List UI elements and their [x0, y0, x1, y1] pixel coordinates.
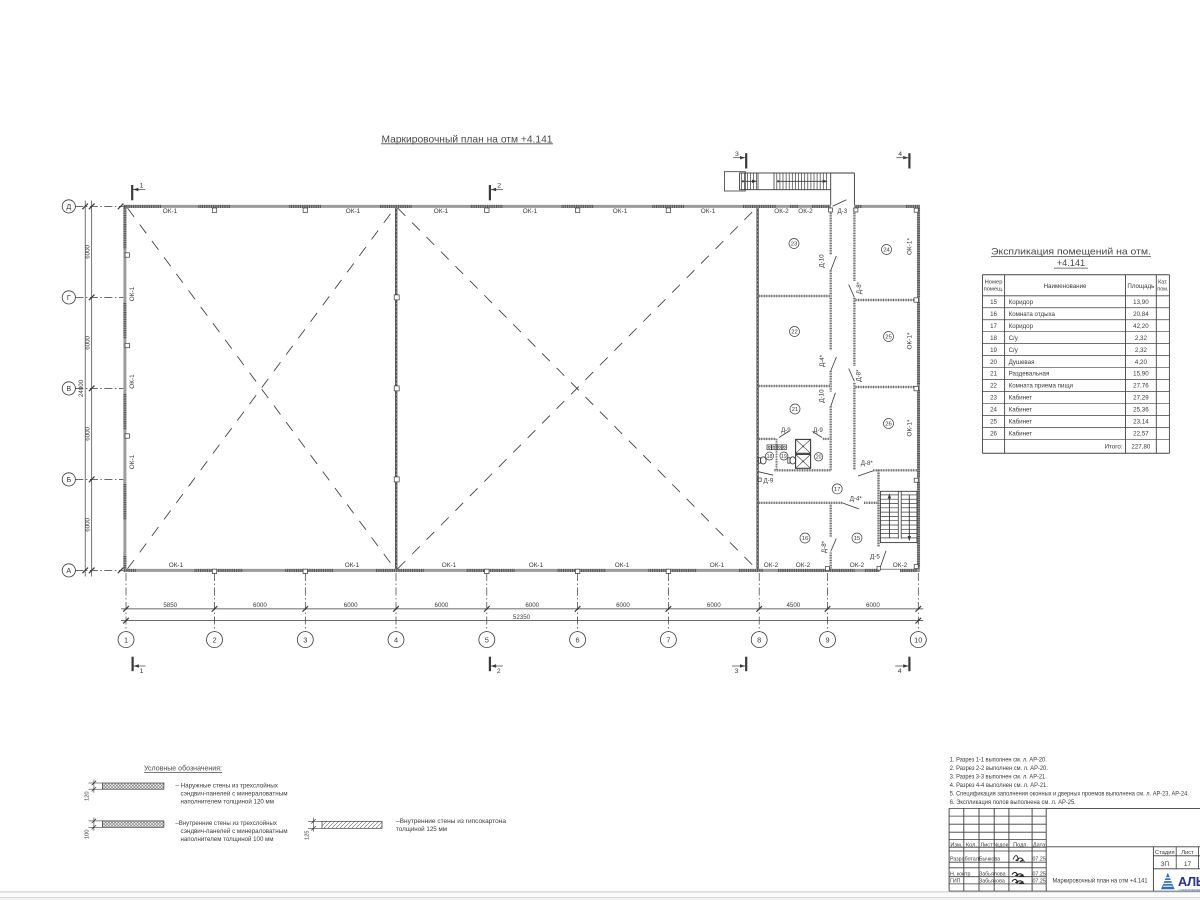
svg-text:С/у: С/у — [1009, 347, 1019, 354]
svg-text:толщиной 125 мм: толщиной 125 мм — [396, 826, 447, 833]
svg-text:ГИП: ГИП — [950, 879, 961, 885]
svg-text:Г: Г — [67, 293, 71, 302]
svg-text:6000: 6000 — [84, 426, 91, 440]
svg-text:20,84: 20,84 — [1133, 311, 1149, 318]
svg-text:Д-4*: Д-4* — [850, 495, 863, 502]
svg-text:Д-4*: Д-4* — [819, 354, 826, 367]
svg-text:Д-9: Д-9 — [781, 427, 791, 434]
svg-text:№док.: №док. — [993, 842, 1010, 848]
svg-text:6000: 6000 — [344, 602, 358, 609]
svg-text:18: 18 — [767, 454, 773, 460]
svg-text:Забьялова: Забьялова — [979, 872, 1006, 878]
svg-text:100: 100 — [85, 829, 91, 839]
svg-text:Н. контр: Н. контр — [950, 872, 970, 878]
svg-text:ОК-1*: ОК-1* — [907, 238, 914, 255]
svg-text:наполнителем толщиной 100 мм: наполнителем толщиной 100 мм — [181, 836, 274, 843]
svg-text:3: 3 — [735, 668, 739, 675]
svg-text:ОК-1: ОК-1 — [613, 208, 628, 215]
svg-text:ОК-1: ОК-1 — [442, 562, 457, 569]
svg-text:24: 24 — [883, 248, 890, 254]
svg-text:6000: 6000 — [616, 602, 630, 609]
svg-text:сэндвич-панелей с минераловатн: сэндвич-панелей с минераловатным — [181, 828, 288, 835]
svg-text:Комната отдыха: Комната отдыха — [1009, 311, 1056, 318]
svg-text:15,90: 15,90 — [1133, 371, 1149, 378]
svg-text:наполнителем толщиной 120 мм: наполнителем толщиной 120 мм — [181, 799, 275, 806]
svg-text:21: 21 — [990, 371, 997, 378]
svg-text:22: 22 — [791, 330, 798, 336]
svg-text:25,36: 25,36 — [1133, 407, 1149, 414]
svg-text:125: 125 — [304, 830, 310, 840]
svg-text:ОК-1: ОК-1 — [129, 454, 136, 469]
svg-text:Условные обозначения:: Условные обозначения: — [144, 763, 222, 772]
svg-text:2,32: 2,32 — [1135, 335, 1148, 342]
svg-text:23,14: 23,14 — [1133, 419, 1149, 426]
svg-text:ОК-1: ОК-1 — [615, 562, 630, 569]
svg-text:5: 5 — [485, 635, 489, 644]
svg-text:Бычкова: Бычкова — [979, 857, 1000, 863]
svg-text:Лист: Лист — [1181, 850, 1194, 856]
svg-text:ОК-1: ОК-1 — [710, 562, 725, 569]
svg-text:Маркировочный план на отм +4.1: Маркировочный план на отм +4.141 — [1053, 877, 1148, 885]
svg-text:помещ.: помещ. — [984, 286, 1004, 292]
svg-text:6000: 6000 — [866, 602, 880, 609]
svg-text:25: 25 — [990, 419, 997, 426]
svg-text:ОК-1: ОК-1 — [345, 562, 360, 569]
svg-text:10: 10 — [914, 635, 922, 644]
svg-text:6000: 6000 — [84, 244, 91, 258]
svg-text:Б: Б — [66, 475, 71, 484]
svg-text:ОК-1: ОК-1 — [523, 208, 538, 215]
svg-text:Д-9: Д-9 — [763, 478, 773, 485]
svg-text:5. Спецификация заполнения око: 5. Спецификация заполнения оконных и две… — [950, 791, 1189, 798]
svg-text:ОК-1: ОК-1 — [163, 208, 178, 215]
svg-text:ОК-2: ОК-2 — [798, 208, 813, 215]
svg-text:–Внутренние стены из гипсокарт: –Внутренние стены из гипсокартона — [396, 818, 507, 825]
svg-text:22: 22 — [990, 383, 997, 390]
svg-text:4: 4 — [898, 151, 902, 158]
svg-text:Площадь: Площадь — [1127, 283, 1154, 290]
svg-text:4,20: 4,20 — [1135, 359, 1148, 366]
svg-text:1: 1 — [140, 183, 144, 190]
svg-text:18: 18 — [990, 335, 997, 342]
svg-text:– Наружные стены из трехслойны: – Наружные стены из трехслойных — [175, 783, 278, 790]
svg-text:15: 15 — [854, 536, 861, 542]
svg-text:3: 3 — [303, 635, 307, 644]
svg-text:3: 3 — [735, 151, 739, 158]
svg-text:Экспликация помещений на отм.: Экспликация помещений на отм. — [991, 246, 1151, 256]
svg-text:Кабинет: Кабинет — [1009, 419, 1033, 426]
svg-text:24: 24 — [990, 407, 997, 414]
svg-text:16: 16 — [990, 311, 997, 318]
svg-text:20: 20 — [816, 455, 822, 461]
svg-text:ОК-2: ОК-2 — [774, 208, 789, 215]
svg-text:Д-5: Д-5 — [870, 554, 880, 561]
svg-text:ОК-2: ОК-2 — [796, 562, 811, 569]
svg-text:8: 8 — [757, 635, 761, 644]
svg-text:Коридор: Коридор — [1009, 323, 1034, 330]
svg-text:26: 26 — [885, 422, 892, 428]
svg-text:6000: 6000 — [84, 517, 91, 531]
svg-text:Лист: Лист — [981, 842, 994, 848]
svg-text:2: 2 — [212, 635, 216, 644]
svg-text:13,90: 13,90 — [1133, 299, 1149, 306]
svg-text:Д: Д — [66, 202, 71, 211]
svg-text:25: 25 — [885, 335, 892, 341]
svg-text:5850: 5850 — [163, 602, 177, 609]
svg-text:6000: 6000 — [707, 602, 721, 609]
svg-text:3. Разрез 3-3 выполнен см. л.: 3. Разрез 3-3 выполнен см. л. АР-21. — [950, 774, 1047, 781]
svg-text:Кабинет: Кабинет — [1009, 407, 1033, 414]
svg-text:Коридор: Коридор — [1009, 299, 1034, 306]
svg-text:Дата: Дата — [1033, 842, 1046, 848]
svg-text:Забьякова: Забьякова — [979, 879, 1005, 885]
svg-text:ЗП: ЗП — [1160, 861, 1169, 868]
svg-text:Д-10: Д-10 — [819, 389, 826, 403]
svg-text:Наименование: Наименование — [1044, 283, 1087, 290]
svg-text:23: 23 — [791, 242, 798, 248]
svg-text:Стадия: Стадия — [1155, 850, 1175, 856]
svg-text:ОК-1: ОК-1 — [129, 286, 136, 301]
svg-text:ОК-1: ОК-1 — [169, 562, 184, 569]
svg-text:21: 21 — [792, 407, 799, 413]
svg-text:В: В — [66, 384, 71, 393]
svg-text:16: 16 — [802, 536, 809, 542]
svg-text:1: 1 — [124, 635, 128, 644]
svg-text:6000: 6000 — [525, 602, 539, 609]
svg-text:–Внутренние стены из трехслойн: –Внутренние стены из трехслойных — [175, 820, 277, 827]
svg-text:2,32: 2,32 — [1135, 347, 1148, 354]
svg-text:ОК-1: ОК-1 — [529, 562, 544, 569]
svg-text:Д-9: Д-9 — [813, 427, 823, 434]
svg-text:ОК-1*: ОК-1* — [907, 419, 914, 436]
svg-text:С/у: С/у — [1009, 335, 1019, 342]
svg-text:2: 2 — [497, 668, 501, 675]
svg-text:07.25: 07.25 — [1032, 857, 1045, 863]
svg-text:17: 17 — [834, 487, 841, 493]
svg-text:42,20: 42,20 — [1133, 323, 1149, 330]
svg-text:Итого:: Итого: — [1105, 444, 1123, 451]
svg-text:27,76: 27,76 — [1133, 383, 1149, 390]
svg-text:Кабинет: Кабинет — [1009, 395, 1033, 402]
svg-text:Комната приема пищи: Комната приема пищи — [1009, 383, 1074, 390]
svg-text:4500: 4500 — [786, 602, 800, 609]
svg-text:4: 4 — [898, 668, 902, 675]
svg-text:6000: 6000 — [84, 335, 91, 349]
svg-text:Кол.: Кол. — [966, 842, 978, 848]
svg-text:Кабинет: Кабинет — [1009, 431, 1033, 438]
svg-text:+4.141: +4.141 — [1057, 258, 1085, 268]
svg-text:ОК-1: ОК-1 — [701, 208, 716, 215]
svg-text:Душевая: Душевая — [1009, 359, 1035, 366]
svg-text:27,29: 27,29 — [1133, 395, 1149, 402]
svg-text:9: 9 — [825, 635, 829, 644]
svg-text:19: 19 — [781, 454, 787, 460]
svg-text:ОК-2: ОК-2 — [764, 562, 779, 569]
svg-text:АЛЬЯНС: АЛЬЯНС — [1178, 874, 1200, 889]
svg-text:Изм.: Изм. — [950, 842, 962, 848]
svg-text:пом.: пом. — [1157, 286, 1168, 292]
svg-text:19: 19 — [990, 347, 997, 354]
svg-text:6000: 6000 — [253, 602, 267, 609]
svg-text:07.25: 07.25 — [1032, 872, 1045, 878]
svg-text:ОК-1: ОК-1 — [434, 208, 449, 215]
svg-text:1. Разрез 1-1 выполнен см. л.: 1. Разрез 1-1 выполнен см. л. АР-20. — [950, 756, 1047, 763]
svg-text:4: 4 — [394, 635, 398, 644]
svg-text:А: А — [66, 566, 71, 575]
svg-text:Д-8*: Д-8* — [855, 369, 862, 382]
svg-text:сэндвич-панелей с минераловатн: сэндвич-панелей с минераловатным — [181, 791, 288, 798]
svg-text:Разработал: Разработал — [950, 857, 979, 863]
svg-text:ОК-1: ОК-1 — [129, 374, 136, 389]
svg-text:4. Разрез 4-4 выполнен см. л.: 4. Разрез 4-4 выполнен см. л. АР-21. — [950, 782, 1048, 789]
svg-text:Д-8*: Д-8* — [861, 460, 874, 467]
svg-text:ОК-1: ОК-1 — [346, 208, 361, 215]
svg-text:6. Экспликация полов выполнена: 6. Экспликация полов выполнена см. л. АР… — [950, 799, 1076, 806]
svg-text:Раздевальная: Раздевальная — [1009, 371, 1050, 378]
svg-text:ОК-1*: ОК-1* — [907, 332, 914, 349]
svg-text:17: 17 — [1184, 861, 1192, 868]
svg-text:17: 17 — [990, 323, 997, 330]
svg-text:Подп.: Подп. — [1013, 842, 1028, 848]
svg-text:2. Разрез 2-2 выполнен см. л.: 2. Разрез 2-2 выполнен см. л. АР-20. — [950, 765, 1048, 772]
svg-text:07.25: 07.25 — [1032, 879, 1045, 885]
svg-text:1: 1 — [140, 668, 144, 675]
svg-text:227,80: 227,80 — [1131, 444, 1150, 451]
svg-text:26: 26 — [990, 431, 997, 438]
svg-text:Кат.: Кат. — [1158, 279, 1167, 285]
svg-text:Номер: Номер — [985, 279, 1003, 285]
svg-text:Д-3: Д-3 — [837, 208, 847, 215]
svg-text:120: 120 — [85, 791, 91, 801]
svg-text:строительная к: строительная к — [1179, 888, 1200, 892]
svg-text:20: 20 — [990, 359, 997, 366]
svg-text:ОК-2: ОК-2 — [893, 562, 908, 569]
svg-text:6000: 6000 — [435, 602, 449, 609]
svg-text:ОК-2: ОК-2 — [850, 562, 865, 569]
svg-text:15: 15 — [990, 299, 997, 306]
svg-text:24000: 24000 — [78, 379, 85, 397]
svg-text:Д-8*: Д-8* — [856, 281, 863, 294]
svg-text:23: 23 — [990, 395, 997, 402]
svg-text:Д-10: Д-10 — [819, 254, 826, 268]
svg-text:22,57: 22,57 — [1133, 431, 1149, 438]
svg-text:Д-8*: Д-8* — [821, 540, 828, 553]
svg-text:7: 7 — [666, 635, 670, 644]
svg-text:52350: 52350 — [513, 614, 531, 621]
svg-text:6: 6 — [576, 635, 580, 644]
svg-text:2: 2 — [497, 183, 501, 190]
